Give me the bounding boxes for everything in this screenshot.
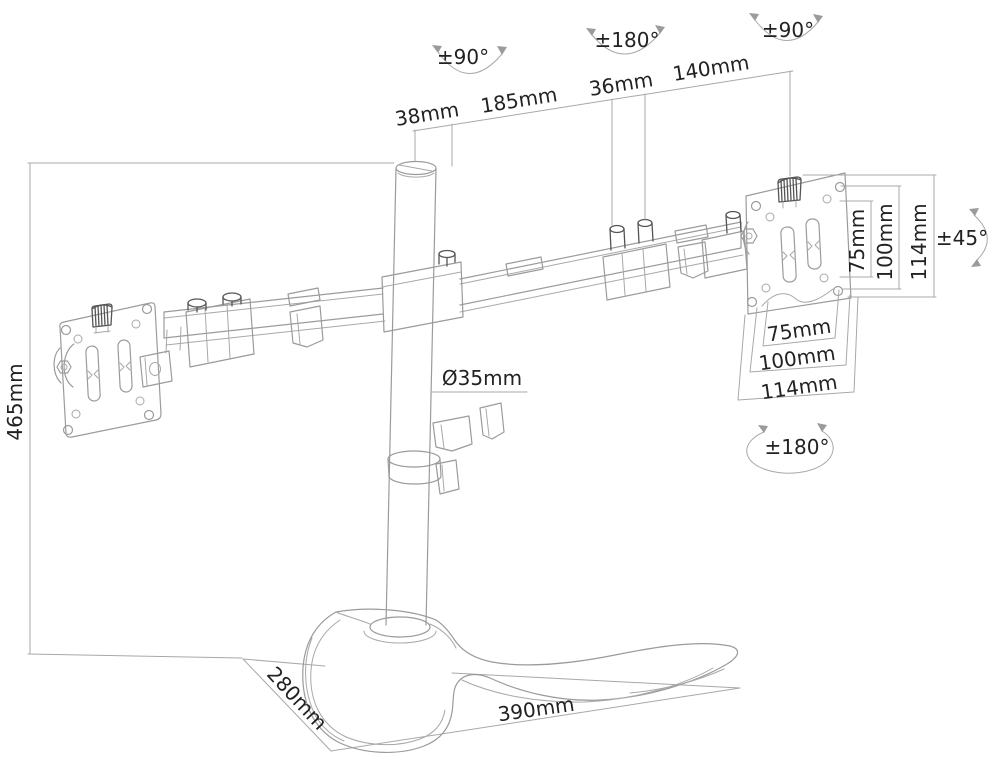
left-vesa-knob [92, 304, 112, 333]
dim-label-185mm: 185mm [479, 82, 559, 118]
dim-label-390mm: 390mm [496, 692, 576, 727]
right-vesa-knob [778, 177, 801, 208]
pole [386, 162, 504, 626]
base [303, 609, 738, 752]
left-vesa-arm-joint [140, 351, 172, 387]
dim-label-140mm: 140mm [671, 50, 751, 86]
pole-cable-ring [388, 451, 459, 494]
right-vesa-slots [781, 219, 822, 283]
dim-label-280mm: 280mm [262, 662, 332, 735]
angle-annotations: ±90° ±180° ±90° ±45° ±180° [432, 13, 988, 473]
right-vesa-tilt-hinge [741, 222, 757, 254]
pole-diameter-dimension: Ø35mm [431, 366, 527, 392]
dim-label-vesa-v-75: 75mm [845, 209, 869, 273]
left-vesa-plate [54, 303, 172, 437]
dim-label-vesa-v-114: 114mm [907, 203, 931, 280]
dim-label-pole-diameter: Ø35mm [442, 366, 522, 390]
angle-label-head-swivel: ±90° [762, 18, 814, 42]
dim-label-38mm: 38mm [393, 97, 460, 131]
pole-boss-outer [370, 617, 430, 637]
left-vesa-slots [86, 340, 133, 402]
monitor-stand-line-drawing: 38mm 185mm 36mm 140mm 465mm Ø35mm 75mm 1… [0, 0, 1000, 780]
right-end-bracket [702, 212, 747, 279]
angle-label-pole-swivel: ±90° [437, 45, 489, 69]
base-dimensions: 280mm 390mm [262, 662, 576, 735]
height-dimension: 465mm [3, 163, 394, 658]
pole-swivel-arc: ±90° [432, 45, 507, 74]
arm-swivel-arc: ±180° [586, 25, 665, 54]
dim-label-36mm: 36mm [587, 67, 654, 101]
diagram-canvas: 38mm 185mm 36mm 140mm 465mm Ø35mm 75mm 1… [0, 0, 1000, 780]
dim-label-465mm: 465mm [3, 363, 27, 440]
left-arm-clamp [186, 293, 254, 367]
right-vesa-stamping-contour [762, 289, 833, 306]
top-dimension-chain: 38mm 185mm 36mm 140mm [393, 50, 793, 225]
vesa-rotate-arc: ±180° [747, 423, 833, 473]
left-vesa-tilt-hinge [54, 344, 74, 387]
angle-label-vesa-rotate: ±180° [765, 435, 830, 459]
vesa-horizontal-dimensions: 75mm 100mm 114mm [738, 290, 858, 404]
dim-label-vesa-h-114: 114mm [759, 370, 839, 405]
right-arm-segment [460, 222, 743, 312]
pole-cable-clip [433, 403, 504, 451]
angle-label-tilt: ±45° [936, 226, 988, 250]
arm-cable-clips [288, 225, 708, 347]
crossbar-arm [164, 212, 747, 368]
vesa-vertical-dimensions: 75mm 100mm 114mm [803, 175, 936, 297]
center-swivel-joint [603, 220, 670, 301]
tilt-arc: ±45° [936, 208, 988, 267]
dim-label-vesa-v-100: 100mm [873, 203, 897, 280]
left-arm-segment [164, 288, 385, 353]
angle-label-arm-swivel: ±180° [595, 28, 660, 52]
right-vesa-plate [741, 173, 851, 314]
head-swivel-arc: ±90° [749, 13, 823, 42]
